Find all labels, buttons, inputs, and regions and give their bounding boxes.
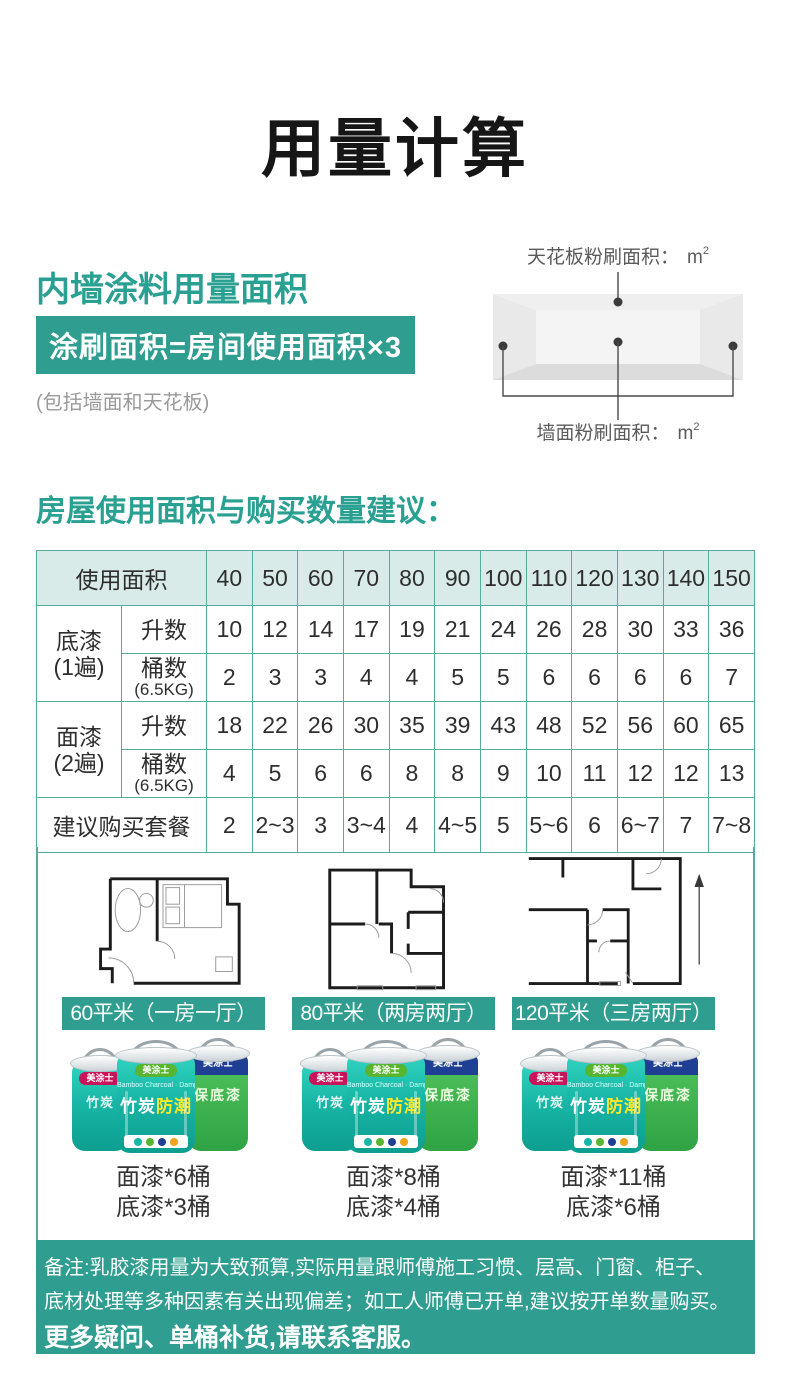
table-cell: 6 [617,654,663,702]
paint-bucket-primer-icon: 美涂士 保底漆 [188,1045,248,1151]
table-cell: 36 [709,606,755,654]
table-cell: 6~7 [617,798,663,853]
table-cell: 39 [435,702,481,750]
primer-count: 底漆*3桶 [62,1193,265,1223]
table-cell: 40 [207,551,253,606]
primer-count: 底漆*6桶 [512,1193,715,1223]
table-cell: 17 [343,606,389,654]
topcoat-count: 面漆*6桶 [62,1163,265,1193]
row-label: 桶数 (6.5KG) [122,654,207,702]
table-cell: 2 [207,798,253,853]
plan-size-label: 120平米（三房两厅） [512,997,715,1030]
footer-line: 备注:乳胶漆用量为大致预算,实际用量跟师傅施工习惯、层高、门窗、柜子、 [44,1251,747,1285]
table-cell: 24 [480,606,526,654]
table-cell: 6 [298,750,344,798]
table-cell: 26 [298,702,344,750]
table-cell: 2 [207,654,253,702]
table-cell: 43 [480,702,526,750]
plan-column-120: 120平米（三房两厅） 美涂士 竹炭 美涂士 保底漆 [512,847,715,1223]
table-cell: 12 [617,750,663,798]
table-cell: 12 [252,606,298,654]
topcoat-count: 面漆*11桶 [512,1163,715,1193]
plan-column-60: 60平米（一房一厅） 美涂士 竹炭 美涂士 保底漆 [62,847,265,1223]
table-cell: 11 [572,750,618,798]
table-cell: 50 [252,551,298,606]
table-cell: 14 [298,606,344,654]
room-diagram: 天花板粉刷面积：m2 墙面粉刷面积：m2 [468,246,768,446]
table-cell: 4 [389,798,435,853]
section2-heading: 房屋使用面积与购买数量建议： [36,486,456,530]
plan-size-label: 80平米（两房两厅） [292,997,495,1030]
paint-buckets: 美涂士 竹炭 美涂士 保底漆 美涂士 [292,1043,495,1155]
table-cell: 3~4 [343,798,389,853]
plans-container: 60平米（一房一厅） 美涂士 竹炭 美涂士 保底漆 [36,847,755,1240]
bucket-lid [565,1047,647,1064]
topcoat-group-label: 面漆 (2遍) [37,702,122,798]
plan-size-label: 60平米（一房一厅） [62,997,265,1030]
section1-heading: 内墙涂料用量面积 [36,262,308,311]
table-cell: 8 [389,750,435,798]
table-cell: 30 [617,606,663,654]
table-cell: 30 [343,702,389,750]
table-cell: 7 [709,654,755,702]
table-cell: 70 [343,551,389,606]
formula-note: (包括墙面和天花板) [36,386,209,415]
table-cell: 35 [389,702,435,750]
room-perspective-icon [478,272,758,422]
table-cell: 9 [480,750,526,798]
formula-banner: 涂刷面积=房间使用面积×3 [36,316,415,374]
row-label: 升数 [122,606,207,654]
table-cell: 4 [389,654,435,702]
table-cell: 5 [252,750,298,798]
paint-bucket-primer-icon: 美涂士 保底漆 [638,1045,698,1151]
topcoat-liters-row: 面漆 (2遍) 升数 182226303539434852566065 [37,702,755,750]
bucket-lid [345,1047,427,1064]
table-cell: 90 [435,551,481,606]
floor-plan-60 [62,847,265,993]
ceiling-area-label: 天花板粉刷面积：m2 [468,246,768,270]
table-cell: 7~8 [709,798,755,853]
plan-column-80: 80平米（两房两厅） 美涂士 竹炭 美涂士 保底漆 [292,847,495,1223]
bucket-lid [115,1047,197,1064]
floor-plan-80 [292,847,495,993]
table-cell: 150 [709,551,755,606]
table-cell: 7 [663,798,709,853]
footer-note: 备注:乳胶漆用量为大致预算,实际用量跟师傅施工习惯、层高、门窗、柜子、 底材处理… [36,1240,755,1354]
table-cell: 48 [526,702,572,750]
table-cell: 10 [207,606,253,654]
footer-line: 底材处理等多种因素有关出现偏差；如工人师傅已开单,建议按开单数量购买。 [44,1285,747,1319]
row-label: 桶数 (6.5KG) [122,750,207,798]
table-cell: 4 [343,654,389,702]
table-cell: 8 [435,750,481,798]
table-cell: 13 [709,750,755,798]
eco-icons [124,1135,188,1148]
paint-bucket-topcoat-icon: 美涂士 Bamboo Charcoal · Damp-proof 竹炭防潮 [347,1047,425,1153]
paint-bucket-primer-icon: 美涂士 保底漆 [418,1045,478,1151]
table-cell: 18 [207,702,253,750]
primer-group-label: 底漆 (1遍) [37,606,122,702]
table-cell: 22 [252,702,298,750]
eco-icons [354,1135,418,1148]
table-cell: 4 [207,750,253,798]
table-cell: 6 [572,654,618,702]
topcoat-count: 面漆*8桶 [292,1163,495,1193]
area-header-cell: 使用面积 [37,551,207,606]
table-cell: 3 [252,654,298,702]
suggestion-label: 建议购买套餐 [37,798,207,853]
table-cell: 21 [435,606,481,654]
primer-liters-row: 底漆 (1遍) 升数 101214171921242628303336 [37,606,755,654]
table-cell: 52 [572,702,618,750]
table-cell: 56 [617,702,663,750]
primer-count: 底漆*4桶 [292,1193,495,1223]
table-cell: 110 [526,551,572,606]
table-cell: 10 [526,750,572,798]
table-cell: 5~6 [526,798,572,853]
table-cell: 3 [298,798,344,853]
table-cell: 6 [572,798,618,853]
table-cell: 28 [572,606,618,654]
product-detail-page: 用量计算 内墙涂料用量面积 涂刷面积=房间使用面积×3 (包括墙面和天花板) 天… [0,0,790,1397]
table-cell: 12 [663,750,709,798]
table-cell: 80 [389,551,435,606]
table-cell: 3 [298,654,344,702]
table-cell: 65 [709,702,755,750]
eco-icons [574,1135,638,1148]
floor-plan-120 [512,847,715,993]
table-cell: 140 [663,551,709,606]
footer-contact-line: 更多疑问、单桶补货,请联系客服。 [44,1319,747,1357]
paint-buckets: 美涂士 竹炭 美涂士 保底漆 美涂士 [62,1043,265,1155]
table-cell: 130 [617,551,663,606]
table-cell: 5 [480,654,526,702]
table-cell: 6 [526,654,572,702]
table-cell: 2~3 [252,798,298,853]
table-cell: 100 [480,551,526,606]
table-cell: 5 [480,798,526,853]
table-cell: 26 [526,606,572,654]
primer-buckets-row: 桶数 (6.5KG) 233445566667 [37,654,755,702]
table-cell: 33 [663,606,709,654]
table-cell: 5 [435,654,481,702]
paint-buckets: 美涂士 竹炭 美涂士 保底漆 美涂士 [512,1043,715,1155]
wall-area-label: 墙面粉刷面积：m2 [468,422,768,446]
row-label: 升数 [122,702,207,750]
usage-table: 使用面积 405060708090100110120130140150 底漆 (… [36,550,755,853]
table-cell: 4~5 [435,798,481,853]
table-cell: 60 [663,702,709,750]
topcoat-buckets-row: 桶数 (6.5KG) 45668891011121213 [37,750,755,798]
paint-bucket-topcoat-icon: 美涂士 Bamboo Charcoal · Damp-proof 竹炭防潮 [567,1047,645,1153]
table-header-row: 使用面积 405060708090100110120130140150 [37,551,755,606]
page-title: 用量计算 [0,98,790,190]
suggestion-row: 建议购买套餐 22~333~444~555~666~777~8 [37,798,755,853]
table-cell: 6 [343,750,389,798]
table-cell: 120 [572,551,618,606]
paint-bucket-topcoat-icon: 美涂士 Bamboo Charcoal · Damp-proof 竹炭防潮 [117,1047,195,1153]
table-cell: 19 [389,606,435,654]
table-cell: 60 [298,551,344,606]
table-cell: 6 [663,654,709,702]
